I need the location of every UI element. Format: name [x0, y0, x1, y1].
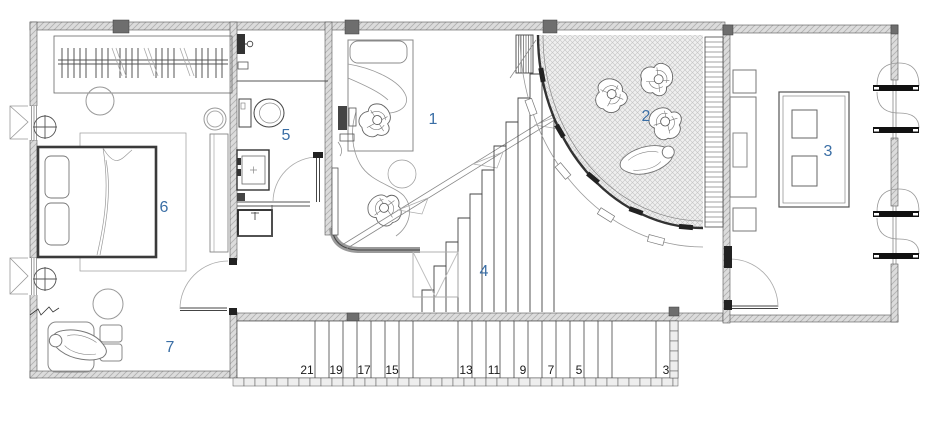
toilet-icon — [239, 99, 284, 127]
wall-left-block-right-lower — [230, 312, 237, 378]
room-7-lounge: 7 — [30, 258, 237, 372]
deck-louver-strip — [705, 37, 723, 227]
bench-icon — [730, 97, 756, 197]
ottoman-icon — [100, 325, 122, 342]
stool-icon — [733, 208, 756, 231]
step-number: 5 — [576, 363, 583, 377]
wall-left-lower — [30, 294, 37, 378]
column-marker — [345, 20, 359, 34]
wall-left-upper — [30, 22, 37, 106]
door-swing-room3 — [724, 246, 778, 310]
wall-left-block-right-upper — [230, 22, 237, 260]
stair-riser-lines — [434, 50, 554, 312]
room-6-label: 6 — [160, 199, 169, 216]
round-table-icon — [93, 289, 123, 319]
bed-icon — [38, 147, 156, 257]
person-icon — [356, 100, 395, 141]
room-3-label: 3 — [824, 143, 833, 160]
room-4-staircase: 4 — [413, 40, 554, 312]
room-2-label: 2 — [642, 108, 651, 125]
computer-desk-icon — [338, 106, 356, 156]
wall-top-main — [30, 22, 725, 30]
pilaster — [332, 168, 338, 235]
wall-bottom-right-block — [723, 315, 898, 322]
room-5-label: 5 — [282, 127, 291, 144]
room-7-label: 7 — [166, 339, 175, 356]
room-1-workspace: 1 — [332, 40, 438, 236]
window-icon — [10, 258, 38, 295]
step-number: 21 — [300, 363, 314, 377]
floor-drain-icon — [237, 193, 245, 201]
direction-marker-icon — [413, 252, 458, 297]
room-3-dining: 3 — [724, 63, 919, 310]
shower-icon — [237, 34, 253, 69]
wall-right-lower — [891, 264, 898, 322]
bathroom-bottom-wall — [237, 202, 310, 206]
stool-icon — [733, 70, 756, 93]
door-swing-room7 — [180, 258, 237, 315]
door-jamb — [229, 308, 237, 315]
vanity-sink-icon — [237, 150, 269, 190]
door-jamb — [724, 246, 732, 268]
room-5-bathroom: 5 — [237, 34, 328, 206]
step-number: 11 — [488, 363, 501, 377]
laundry-annex — [237, 205, 272, 236]
step-number: 15 — [385, 363, 399, 377]
step-number: 17 — [357, 363, 371, 377]
wall-top-right-block — [723, 25, 898, 33]
step-number: 13 — [459, 363, 473, 377]
wall-right-middle — [891, 138, 898, 206]
step-number: 9 — [520, 363, 527, 377]
column-marker — [347, 313, 359, 322]
stool-inner — [207, 111, 223, 127]
room-4-label: 4 — [480, 263, 489, 280]
step-number: 7 — [548, 363, 555, 377]
door-jamb — [724, 300, 732, 310]
stool-icon — [86, 87, 114, 115]
closet-hangers-icon — [54, 36, 232, 93]
step-number: 3 — [663, 363, 670, 377]
room-1-label: 1 — [429, 111, 438, 128]
wall-mid-right — [723, 25, 730, 323]
column-marker — [723, 25, 733, 35]
wall-bottom-mid-block — [237, 313, 723, 321]
column-marker — [891, 25, 898, 34]
column-marker — [113, 20, 129, 33]
floor-plan-drawing: 6 7 — [0, 0, 941, 440]
table-icon — [779, 92, 849, 207]
room-6-bedroom: 6 — [33, 36, 232, 291]
seat-icon — [388, 160, 416, 188]
column-marker — [669, 307, 679, 316]
bench-cushion — [733, 133, 747, 167]
external-stair: 21 19 17 15 13 11 9 7 5 3 — [233, 321, 678, 386]
wall-mid-block-left — [325, 22, 332, 235]
step-number: 19 — [329, 363, 343, 377]
column-marker — [543, 20, 557, 33]
door-jamb — [313, 152, 323, 158]
wall-curved-corner — [332, 228, 420, 250]
bench-icon — [350, 41, 407, 63]
shelf-icon — [210, 134, 228, 252]
door-jamb — [229, 258, 237, 265]
window-icon — [10, 106, 38, 140]
room-2-terrace: 2 — [520, 35, 703, 247]
door-swing-bathroom — [273, 152, 323, 202]
wall-left-middle — [30, 140, 37, 258]
floor-plan-page: 6 7 — [0, 0, 941, 440]
